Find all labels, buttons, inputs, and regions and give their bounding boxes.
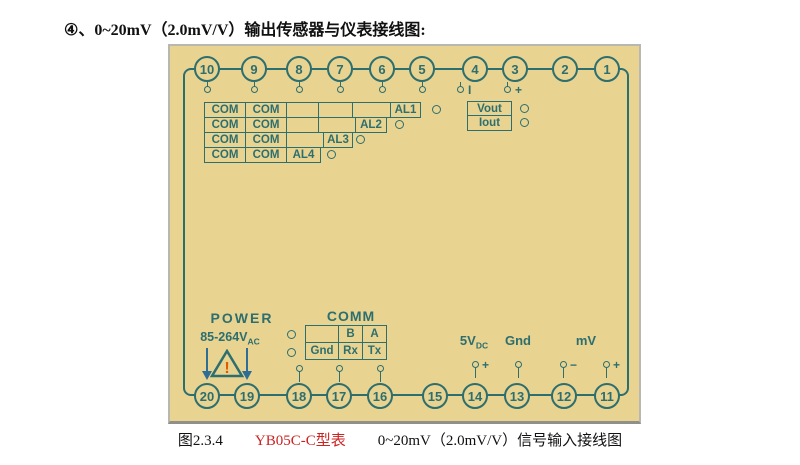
gnd-label: Gnd: [496, 333, 540, 348]
svg-text:!: !: [224, 360, 229, 377]
al3-cell: AL3: [323, 132, 353, 148]
com-cell: COM: [204, 132, 246, 148]
contact-dot-10: [204, 86, 211, 93]
contact-dot-5: [419, 86, 426, 93]
terminal-3: 3: [502, 56, 528, 82]
meter-model: YB05C-C型表: [255, 433, 346, 449]
contact-dot-3: [504, 86, 511, 93]
contact-dot-7: [337, 86, 344, 93]
com-cell: COM: [245, 102, 287, 118]
contact-dot-8: [296, 86, 303, 93]
page-title: ④、0~20mV（2.0mV/V）输出传感器与仪表接线图:: [64, 16, 426, 40]
alarm-row-al3: COM COM AL3: [204, 132, 353, 148]
contact-dot-18: [296, 365, 303, 372]
terminal-15: 15: [422, 383, 448, 409]
com-cell: COM: [204, 117, 246, 133]
figure-description: 0~20mV（2.0mV/V）信号输入接线图: [378, 433, 622, 449]
terminal-4: 4: [462, 56, 488, 82]
alarm-row-al4: COM COM AL4: [204, 147, 321, 163]
terminal-14: 14: [462, 383, 488, 409]
terminal-10: 10: [194, 56, 220, 82]
polarity-plus-terminal-14: +: [482, 359, 489, 371]
alarm-row-al2: COM COM AL2: [204, 117, 387, 133]
contact-dot-13: [515, 361, 522, 368]
alarm-row-al1: COM COM AL1: [204, 102, 421, 118]
terminal-13: 13: [504, 383, 530, 409]
terminal-8: 8: [286, 56, 312, 82]
power-wire-arrow-20: [206, 348, 208, 372]
empty-cell: [286, 132, 324, 148]
vout-contact: [520, 104, 529, 113]
warning-triangle-icon: !: [210, 349, 244, 378]
al2-cell: AL2: [355, 117, 387, 133]
terminal-11: 11: [594, 383, 620, 409]
al1-cell: AL1: [390, 102, 421, 118]
comm-gnd-cell: Gnd: [305, 342, 339, 360]
iout-cell: Iout: [467, 115, 512, 131]
figure-caption: 图2.3.4YB05C-C型表0~20mV（2.0mV/V）信号输入接线图: [0, 429, 800, 450]
power-label: POWER: [198, 310, 286, 326]
polarity-plus-terminal-3: +: [515, 84, 522, 96]
mv-input-label: mV: [564, 333, 608, 348]
relay-contact-al4: [327, 150, 336, 159]
polarity-plus-terminal-11: +: [613, 359, 620, 371]
contact-dot-9: [251, 86, 258, 93]
comm-b-cell: B: [338, 325, 363, 343]
comm-contact-1: [287, 330, 296, 339]
power-wire-arrow-19: [246, 348, 248, 372]
relay-contact-al1: [432, 105, 441, 114]
com-cell: COM: [245, 132, 287, 148]
iout-box: Iout: [467, 115, 512, 131]
com-cell: COM: [245, 147, 287, 163]
power-voltage-label: 85-264VAC: [182, 330, 278, 347]
comm-tx-cell: Tx: [362, 342, 387, 360]
empty-cell: [318, 117, 356, 133]
comm-label: COMM: [316, 308, 386, 324]
terminal-20: 20: [194, 383, 220, 409]
terminal-18: 18: [286, 383, 312, 409]
comm-empty-cell: [305, 325, 339, 343]
current-mark-terminal-4: I: [468, 84, 471, 96]
wiring-diagram-panel: 10 9 8 7 6 5 4 3 2 1 I + COM COM AL1 COM…: [168, 44, 641, 424]
com-cell: COM: [245, 117, 287, 133]
empty-cell: [352, 102, 391, 118]
comm-rx-cell: Rx: [338, 342, 363, 360]
terminal-9: 9: [241, 56, 267, 82]
terminal-6: 6: [369, 56, 395, 82]
contact-dot-14: [472, 361, 479, 368]
supply-5vdc-label: 5VDC: [447, 333, 501, 351]
contact-dot-11: [603, 361, 610, 368]
terminal-16: 16: [367, 383, 393, 409]
com-cell: COM: [204, 102, 246, 118]
figure-number: 图2.3.4: [178, 433, 223, 449]
terminal-12: 12: [551, 383, 577, 409]
empty-cell: [286, 117, 319, 133]
terminal-1: 1: [594, 56, 620, 82]
comm-a-cell: A: [362, 325, 387, 343]
comm-table-row-2: Gnd Rx Tx: [305, 342, 387, 360]
terminal-19: 19: [234, 383, 260, 409]
contact-dot-17: [336, 365, 343, 372]
iout-contact: [520, 118, 529, 127]
polarity-minus-terminal-12: −: [570, 359, 577, 371]
terminal-7: 7: [327, 56, 353, 82]
empty-cell: [318, 102, 353, 118]
relay-contact-al3: [356, 135, 365, 144]
contact-dot-4: [457, 86, 464, 93]
terminal-17: 17: [326, 383, 352, 409]
comm-contact-2: [287, 348, 296, 357]
com-cell: COM: [204, 147, 246, 163]
contact-dot-6: [379, 86, 386, 93]
terminal-5: 5: [409, 56, 435, 82]
contact-dot-16: [377, 365, 384, 372]
al4-cell: AL4: [286, 147, 321, 163]
contact-dot-12: [560, 361, 567, 368]
relay-contact-al2: [395, 120, 404, 129]
comm-table-row-1: B A: [305, 325, 387, 343]
empty-cell: [286, 102, 319, 118]
terminal-2: 2: [552, 56, 578, 82]
